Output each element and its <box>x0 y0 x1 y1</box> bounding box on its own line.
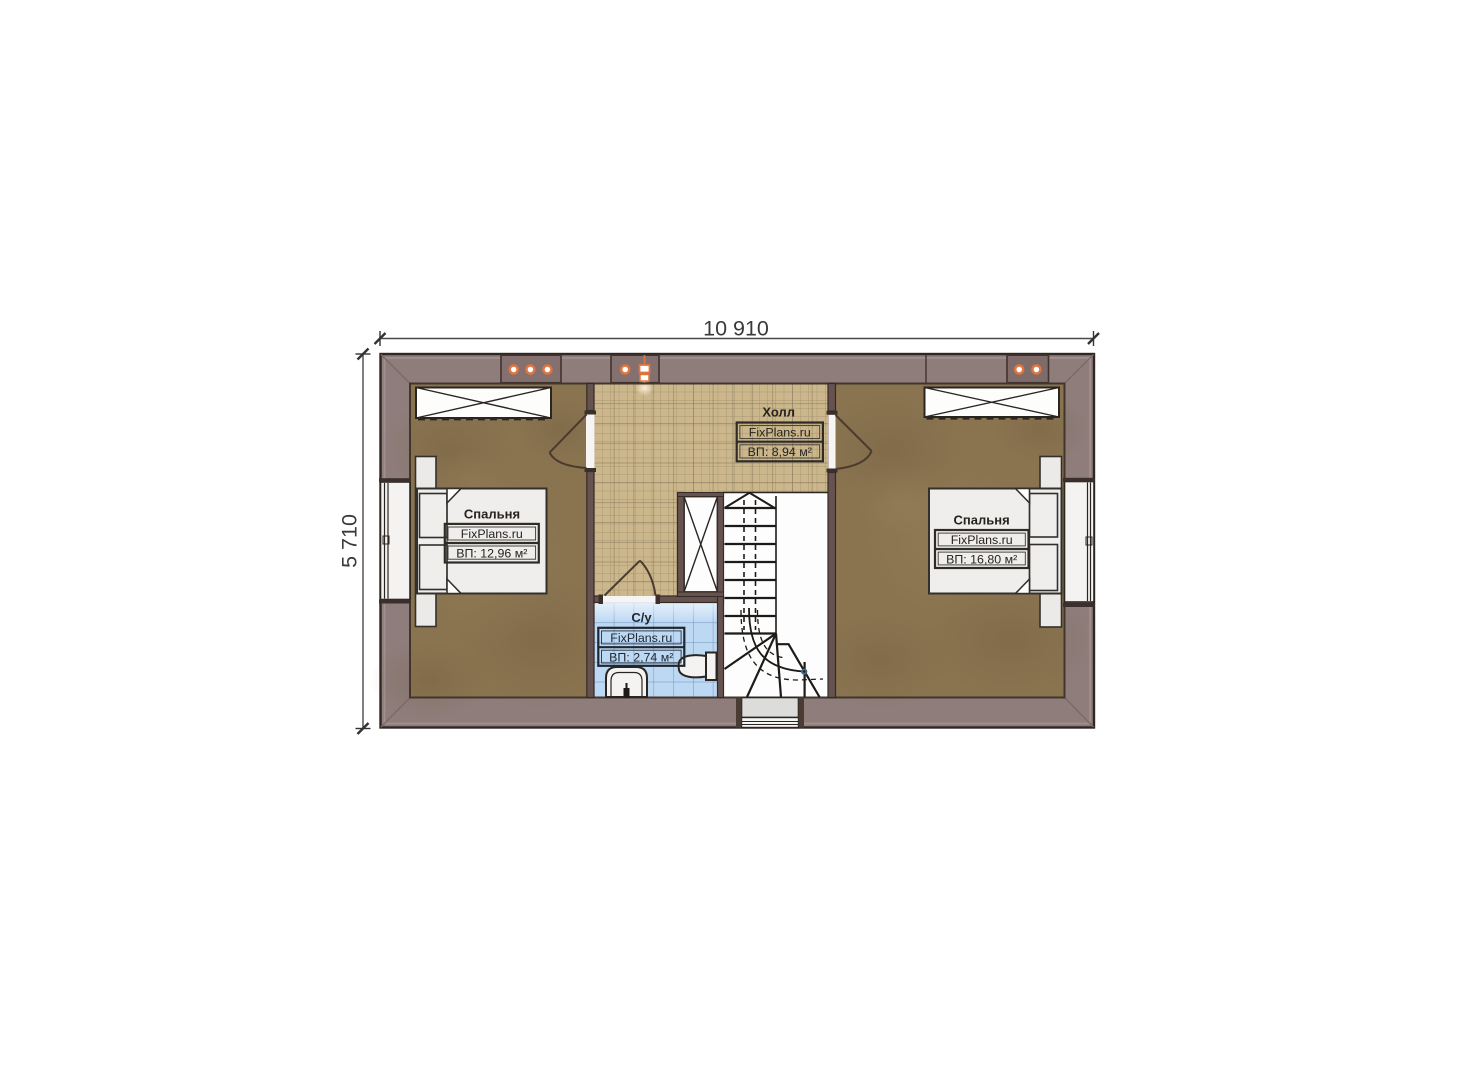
svg-text:ВП: 16,80 м²: ВП: 16,80 м² <box>946 552 1017 566</box>
svg-text:Холл: Холл <box>762 405 795 420</box>
svg-text:ВП: 2,74 м²: ВП: 2,74 м² <box>609 650 673 664</box>
svg-text:Спальня: Спальня <box>464 507 520 522</box>
svg-text:FixPlans.ru: FixPlans.ru <box>951 533 1013 547</box>
svg-text:Спальня: Спальня <box>954 513 1010 528</box>
svg-text:ВП: 8,94 м²: ВП: 8,94 м² <box>748 445 812 459</box>
svg-text:5 710: 5 710 <box>338 514 362 568</box>
svg-text:FixPlans.ru: FixPlans.ru <box>749 426 811 440</box>
svg-text:FixPlans.ru: FixPlans.ru <box>610 631 672 645</box>
svg-text:10 910: 10 910 <box>703 317 769 341</box>
svg-text:ВП: 12,96 м²: ВП: 12,96 м² <box>456 546 527 560</box>
svg-text:С/у: С/у <box>631 610 652 625</box>
svg-text:FixPlans.ru: FixPlans.ru <box>461 527 523 541</box>
